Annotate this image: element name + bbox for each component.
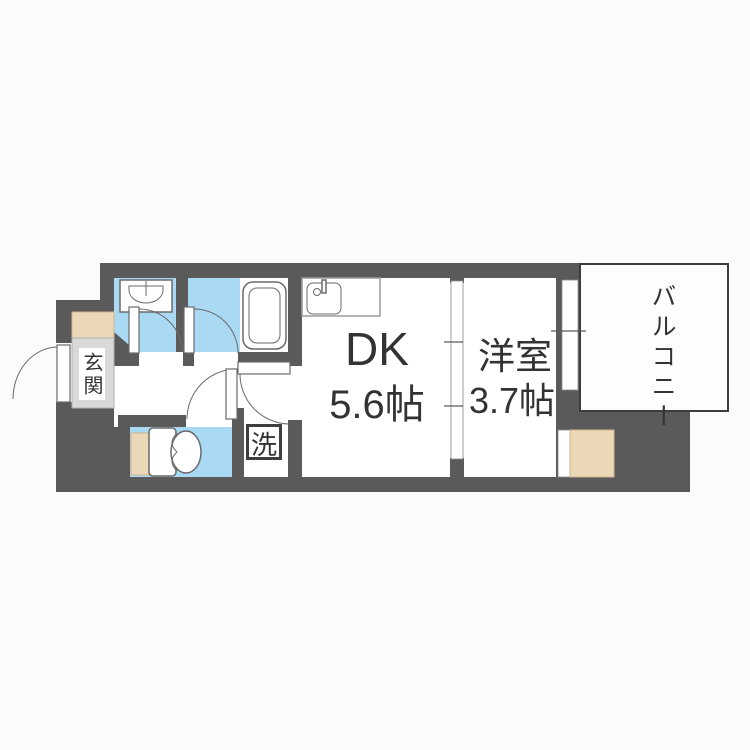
kitchen-sink-icon [302, 278, 380, 316]
closet-door [558, 430, 570, 477]
western-room-size-label: 3.7帖 [456, 372, 568, 424]
washbasin-icon [120, 280, 172, 312]
bathroom-floor [188, 278, 240, 352]
washroom-door-opening [139, 352, 183, 366]
closet-floor [570, 430, 614, 477]
wall-partition-stub-top [448, 263, 466, 283]
laundry-label: 洗 [246, 424, 282, 460]
shoe-cabinet [72, 312, 114, 338]
dk-label: DK [302, 322, 452, 376]
bathtub-icon [243, 282, 286, 349]
entrance-door [13, 345, 70, 402]
dk-size-label: 5.6帖 [293, 372, 461, 430]
entrance-label: 玄関 [80, 352, 106, 398]
floorplan-canvas: 玄関 DK 5.6帖 洋室 3.7帖 バルコニー 洗 [0, 0, 750, 750]
balcony-label: バルコニー [644, 283, 680, 468]
bathroom-door-opening [194, 352, 238, 366]
wall-bottom [302, 477, 690, 492]
wall-partition-stub-bottom [448, 458, 466, 478]
toilet-icon [131, 428, 201, 476]
wall-toilet-top [118, 415, 186, 427]
